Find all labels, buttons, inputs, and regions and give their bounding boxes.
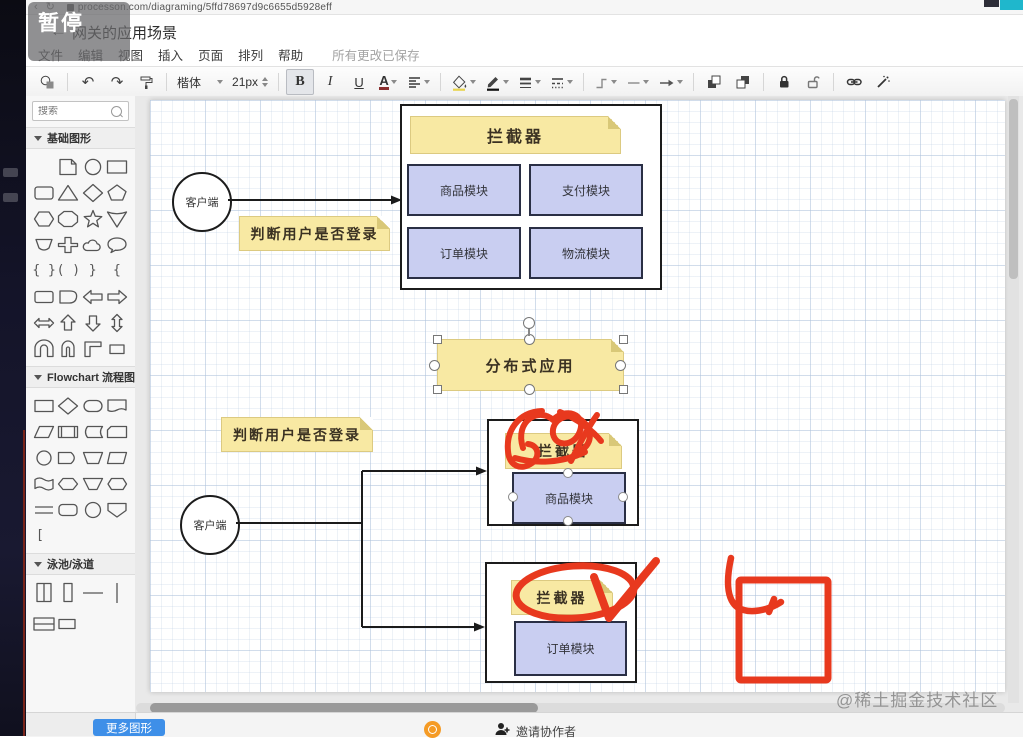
shape-connector-circle[interactable]: [81, 498, 105, 521]
font-size-stepper[interactable]: [262, 77, 268, 87]
shape-flow-circle[interactable]: [32, 446, 56, 469]
selection-handle-se[interactable]: [619, 385, 628, 394]
undo-icon[interactable]: ↶: [75, 70, 101, 94]
font-family-select[interactable]: 楷体: [174, 70, 226, 94]
shape-arrow-up-down[interactable]: [105, 311, 129, 334]
search-input[interactable]: [33, 106, 111, 117]
font-color-button[interactable]: A: [375, 70, 401, 94]
invite-collaborator-label[interactable]: 邀请协作者: [516, 723, 576, 740]
collapse-icon: [34, 375, 42, 380]
more-shapes-button[interactable]: 更多图形: [93, 719, 165, 736]
processon-app: ‹ ↻ processon.com/diagraming/5ffd78697d9…: [0, 0, 1023, 736]
shape-callout[interactable]: [105, 233, 129, 256]
shape-arrow-left-right[interactable]: [32, 311, 56, 334]
interceptor-note-1[interactable]: 拦截器: [410, 116, 621, 154]
shape-triangle[interactable]: [56, 181, 80, 204]
shape-rounded-rectangle[interactable]: [32, 181, 56, 204]
shape-vertical-lane[interactable]: [56, 581, 80, 604]
fill-color-button[interactable]: [448, 70, 479, 94]
vertical-scrollbar-thumb[interactable]: [1009, 99, 1018, 279]
shape-vertical-pool[interactable]: [32, 581, 56, 604]
invite-person-icon[interactable]: [494, 722, 512, 736]
text-align-button[interactable]: [404, 70, 433, 94]
shape-cone[interactable]: [105, 207, 129, 230]
shape-cross[interactable]: [56, 233, 80, 256]
shape-bracket[interactable]: [: [32, 524, 56, 547]
interceptor-note-2[interactable]: 拦截器: [505, 433, 622, 469]
shape-brace-right[interactable]: }: [81, 259, 105, 282]
svg-text:T: T: [38, 158, 50, 177]
selection-handle-w[interactable]: [429, 360, 440, 371]
module-order-1[interactable]: 订单模块: [407, 227, 521, 279]
shape-brace-left[interactable]: {: [105, 259, 129, 282]
shape-arrow-right[interactable]: [105, 285, 129, 308]
menu-bar: 文件 编辑 视图 插入 页面 排列 帮助 所有更改已保存: [26, 44, 1023, 64]
swimlane-shape-grid: [26, 575, 135, 641]
shape-inverted-trapezoid[interactable]: [81, 472, 105, 495]
recording-pause-overlay: 暂停: [28, 2, 130, 61]
menu-help[interactable]: 帮助: [278, 45, 303, 64]
unlock-icon[interactable]: [800, 70, 826, 94]
shape-sidebar: 基础图形 T { } ( ) } {: [26, 96, 136, 712]
shape-corner[interactable]: [81, 337, 105, 360]
shape-octagon[interactable]: [56, 207, 80, 230]
basic-shape-grid: T { } ( ) } {: [26, 149, 135, 366]
redo-icon[interactable]: ↷: [104, 70, 130, 94]
line-tool-button[interactable]: [623, 70, 652, 94]
shape-diamond[interactable]: [81, 181, 105, 204]
shape-card[interactable]: [105, 420, 129, 443]
selection-handle-nw[interactable]: [433, 335, 442, 344]
shape-parallelogram[interactable]: [32, 420, 56, 443]
shape-search[interactable]: [32, 101, 129, 121]
shape-plain-rectangle[interactable]: [56, 612, 80, 635]
module-logistics[interactable]: 物流模块: [529, 227, 643, 279]
shape-trapezoid[interactable]: [105, 446, 129, 469]
window-strip-mark: [3, 168, 18, 177]
shape-sticky-note[interactable]: [56, 155, 80, 178]
bring-forward-icon[interactable]: [701, 70, 727, 94]
shape-vertical-line[interactable]: [105, 581, 129, 604]
client-node-2[interactable]: 客户端: [180, 495, 240, 555]
shape-wavy-document[interactable]: [32, 472, 56, 495]
font-size-select[interactable]: 21px: [229, 70, 271, 94]
connector-style-button[interactable]: [591, 70, 620, 94]
shape-horizontal-line[interactable]: [81, 581, 105, 604]
browser-address-bar[interactable]: ‹ ↻ processon.com/diagraming/5ffd78697d9…: [26, 0, 1023, 15]
shape-rounded-process[interactable]: [56, 498, 80, 521]
browser-corner-chip: [984, 0, 999, 7]
format-toolbar: ↶ ↷ 楷体 21px B I U A: [26, 66, 1023, 98]
module-payment[interactable]: 支付模块: [529, 164, 643, 216]
shape-process[interactable]: [32, 394, 56, 417]
decision-note-1[interactable]: 判断用户是否登录: [239, 216, 390, 251]
shape-small-rectangle[interactable]: [105, 337, 129, 360]
shape-arrow-down[interactable]: [81, 311, 105, 334]
window-strip-accent: [23, 430, 25, 736]
shape-manual-operation[interactable]: [81, 446, 105, 469]
connection-point-n[interactable]: [563, 468, 573, 478]
shape-pentagon[interactable]: [105, 181, 129, 204]
underline-button[interactable]: U: [346, 70, 372, 94]
selection-handle-s[interactable]: [524, 384, 535, 395]
connection-point-e[interactable]: [618, 492, 628, 502]
shape-chord[interactable]: [32, 233, 56, 256]
menu-page[interactable]: 页面: [198, 45, 223, 64]
shape-stored-data[interactable]: [81, 420, 105, 443]
connection-point-s[interactable]: [563, 516, 573, 526]
module-goods-1[interactable]: 商品模块: [407, 164, 521, 216]
shape-paren-pair[interactable]: ( ): [56, 259, 80, 282]
collapse-icon: [34, 136, 42, 141]
shape-off-page-connector[interactable]: [105, 498, 129, 521]
menu-insert[interactable]: 插入: [158, 45, 183, 64]
send-backward-icon[interactable]: [730, 70, 756, 94]
client-node-1[interactable]: 客户端: [172, 172, 232, 232]
bold-button[interactable]: B: [286, 69, 314, 95]
module-order-2[interactable]: 订单模块: [514, 621, 627, 676]
selection-handle-e[interactable]: [615, 360, 626, 371]
italic-button[interactable]: I: [317, 70, 343, 94]
rotation-handle[interactable]: [523, 317, 535, 329]
interceptor-note-3[interactable]: 拦截器: [511, 580, 613, 615]
shape-predefined-process[interactable]: [56, 420, 80, 443]
shape-brace-pair[interactable]: { }: [32, 259, 56, 282]
shape-arrow-up[interactable]: [56, 311, 80, 334]
link-icon[interactable]: [841, 70, 867, 94]
shape-rectangle[interactable]: [105, 155, 129, 178]
shape-text[interactable]: T: [32, 155, 56, 178]
shape-terminator[interactable]: [81, 394, 105, 417]
shape-u[interactable]: [32, 337, 56, 360]
section-flowchart[interactable]: Flowchart 流程图: [26, 366, 135, 388]
shape-cloud[interactable]: [81, 233, 105, 256]
save-status: 所有更改已保存: [332, 45, 420, 64]
connection-point-w[interactable]: [508, 492, 518, 502]
shape-star[interactable]: [81, 207, 105, 230]
magic-wand-icon[interactable]: [870, 70, 896, 94]
collapse-icon: [34, 562, 42, 567]
selection-handle-ne[interactable]: [619, 335, 628, 344]
shape-rounded-rect2[interactable]: [32, 285, 56, 308]
browser-teal-chip: [1000, 0, 1023, 10]
decision-note-2[interactable]: 判断用户是否登录: [221, 417, 373, 452]
shape-ellipse[interactable]: [81, 155, 105, 178]
shape-double-line[interactable]: [32, 498, 56, 521]
shape-library-icon[interactable]: [34, 70, 60, 94]
section-basic-shapes[interactable]: 基础图形: [26, 127, 135, 149]
watermark: @稀土掘金技术社区: [836, 686, 998, 711]
format-painter-icon[interactable]: [133, 70, 159, 94]
shape-arrow-left[interactable]: [81, 285, 105, 308]
line-color-button[interactable]: [482, 70, 512, 94]
section-swimlane[interactable]: 泳池/泳道: [26, 553, 135, 575]
search-icon: [111, 106, 122, 117]
shape-blob[interactable]: [56, 285, 80, 308]
lock-icon[interactable]: [771, 70, 797, 94]
shape-decision[interactable]: [56, 394, 80, 417]
menu-arrange[interactable]: 排列: [238, 45, 263, 64]
window-strip-mark: [3, 193, 18, 202]
shape-delay[interactable]: [56, 446, 80, 469]
user-avatar[interactable]: [424, 721, 441, 738]
shape-hexagon2[interactable]: [105, 472, 129, 495]
selection-handle-sw[interactable]: [433, 385, 442, 394]
arrow-tool-button[interactable]: [655, 70, 686, 94]
shape-horizontal-pool[interactable]: [32, 612, 56, 635]
shape-hexagon[interactable]: [32, 207, 56, 230]
shape-document[interactable]: [105, 394, 129, 417]
shape-preparation[interactable]: [56, 472, 80, 495]
line-weight-button[interactable]: [515, 70, 544, 94]
line-style-button[interactable]: [547, 70, 576, 94]
shape-u-narrow[interactable]: [56, 337, 80, 360]
flowchart-shape-grid: [: [26, 388, 135, 553]
